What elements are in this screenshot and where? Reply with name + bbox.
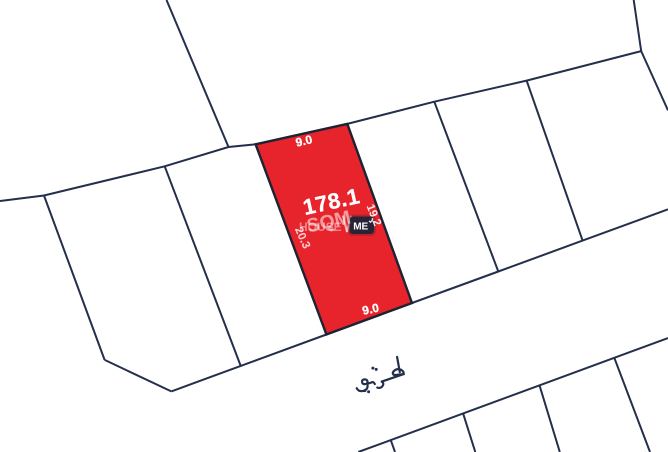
svg-text:ME: ME: [353, 222, 368, 233]
